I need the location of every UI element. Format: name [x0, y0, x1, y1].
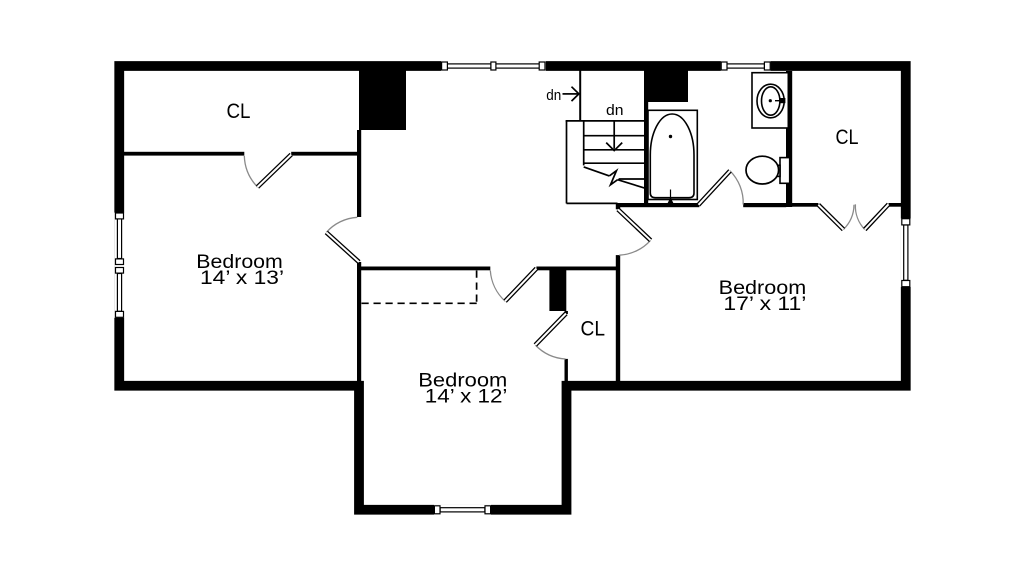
svg-text:CL: CL [836, 126, 859, 149]
svg-text:14’ x 13’: 14’ x 13’ [200, 267, 284, 289]
svg-text:CL: CL [227, 100, 251, 123]
svg-text:dn: dn [606, 102, 624, 119]
svg-text:14’ x 12’: 14’ x 12’ [425, 386, 508, 408]
svg-text:17’ x 11’: 17’ x 11’ [723, 293, 806, 315]
svg-text:CL: CL [581, 318, 606, 341]
svg-text:dn: dn [546, 87, 561, 104]
